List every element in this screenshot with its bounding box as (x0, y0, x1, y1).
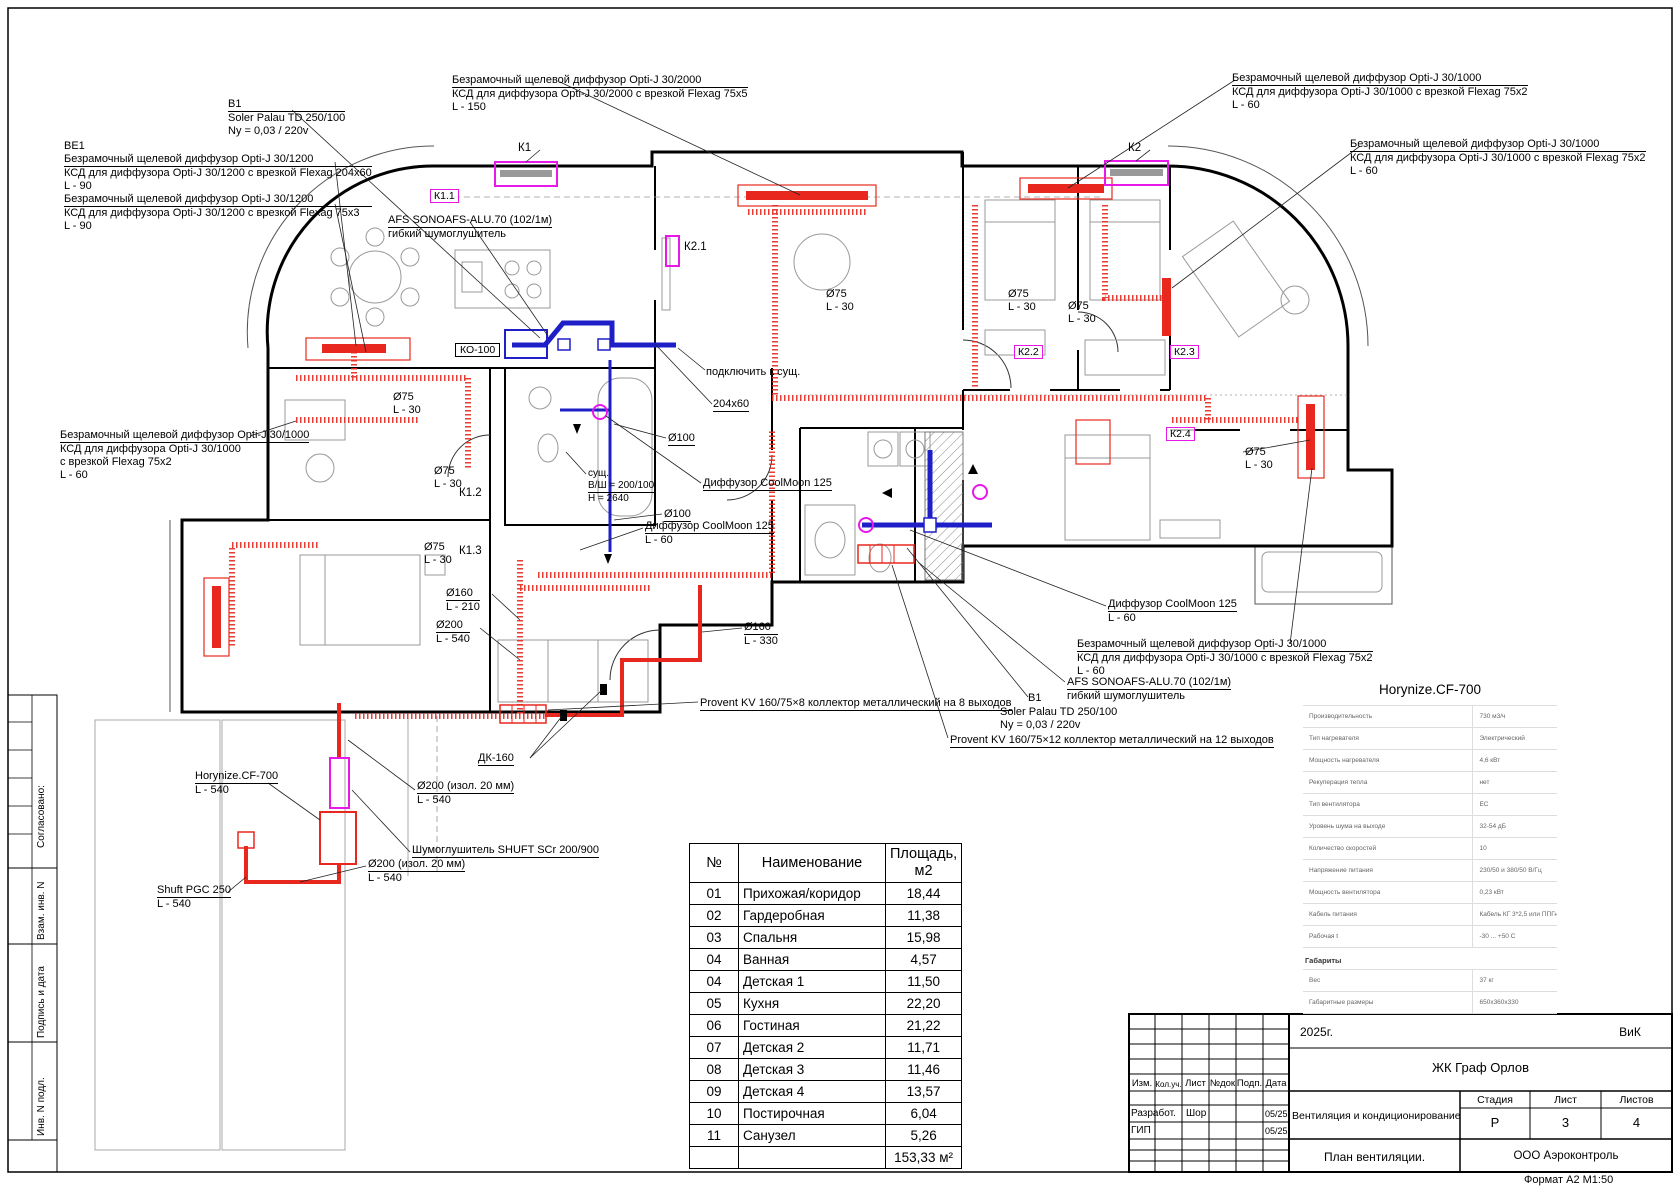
table-cell: 15,98 (886, 927, 962, 949)
table-row: Габаритные размеры650х360х330 (1303, 992, 1557, 1014)
annotation-shuft-silencer: Шумоглушитель SHUFT SCr 200/900 (412, 844, 599, 858)
annotation-line: Ø160 (446, 587, 480, 601)
annotation-d75-5: Ø75L - 30 (1008, 288, 1036, 314)
annotation-line: Soler Palau TD 250/100 (1000, 706, 1117, 719)
table-cell: Рабочая t (1303, 926, 1473, 948)
table-cell: 11,46 (886, 1059, 962, 1081)
titleblock-sheets-value: 4 (1601, 1115, 1672, 1130)
table-cell: Электрический (1473, 728, 1557, 750)
annotation-shuft-pgc: Shuft PGC 250L - 540 (157, 884, 231, 911)
table-cell: нет (1473, 772, 1557, 794)
annotation-line: L - 540 (436, 633, 470, 646)
annotation-line: Диффузор CoolMoon 125 (1108, 598, 1237, 612)
table-row: 04Ванная4,57 (690, 949, 962, 971)
unit-spec-dimensions-header: Габариты (1305, 956, 1557, 965)
table-row: Тип вентилятораЕС (1303, 794, 1557, 816)
titleblock-date-2: 05/25 (1265, 1126, 1288, 1136)
annotation-line: Безрамочный щелевой диффузор Opti-J 30/1… (1350, 138, 1646, 152)
table-cell (690, 1147, 739, 1169)
table-cell: Рекуперация тепла (1303, 772, 1473, 794)
table-cell: 5,26 (886, 1125, 962, 1147)
titleblock-role-1: Разработ. (1131, 1108, 1176, 1119)
table-row: 05Кухня22,20 (690, 993, 962, 1015)
building-walls (182, 152, 1392, 712)
table-cell: 21,22 (886, 1015, 962, 1037)
annotation-afs-silencer-bottom: AFS SONOAFS-ALU.70 (102/1м)гибкий шумогл… (1067, 676, 1231, 703)
label-k2-2: К2.2 (1014, 345, 1043, 359)
titleblock-year: 2025г. (1300, 1025, 1333, 1039)
construction-lines (434, 197, 1348, 395)
table-cell: Количество скоростей (1303, 838, 1473, 860)
label-k1-1: К1.1 (430, 189, 459, 203)
table-cell: Кабель КГ 3*2,5 или ППГнг 3*2,5 (КГ 5*1,… (1473, 904, 1557, 926)
table-cell: Кухня (739, 993, 886, 1015)
annotation-line: L - 30 (1245, 459, 1273, 472)
annotation-line: Ø100 (668, 432, 695, 446)
titleblock-stage-label: Стадия (1460, 1094, 1530, 1106)
annotation-line: L - 60 (645, 534, 774, 547)
annotation-line: B1 (228, 98, 345, 112)
annotation-coolmoon-2: Диффузор CoolMoon 125L - 60 (645, 520, 774, 547)
titleblock-sheets-label: Листов (1601, 1094, 1672, 1106)
annotation-line: L - 60 (1232, 99, 1528, 112)
annotation-line: L - 60 (1350, 165, 1646, 178)
label-k1-2: К1.2 (459, 487, 482, 499)
annotation-connect-existing: подключить к сущ. (706, 366, 800, 379)
titleblock-col-podp: Подп. (1236, 1078, 1263, 1089)
annotation-coolmoon-3: Диффузор CoolMoon 125L - 60 (1108, 598, 1237, 625)
annotation-line: сущ. (588, 468, 654, 480)
annotation-line: Ø75 (1068, 300, 1096, 313)
annotation-line: Ø200 (436, 619, 470, 633)
table-row: 02Гардеробная11,38 (690, 905, 962, 927)
table-cell: 07 (690, 1037, 739, 1059)
label-k1: К1 (518, 142, 531, 154)
table-cell: Постирочная (739, 1103, 886, 1125)
annotation-line: Ø200 (изол. 20 мм) (417, 780, 514, 794)
table-cell: 11,38 (886, 905, 962, 927)
title-block-grid (1129, 1014, 1672, 1172)
titleblock-col-koluch: Кол.уч. (1155, 1080, 1182, 1089)
unit-spec-dimensions-table: Вес37 кгГабаритные размеры650х360х330 (1303, 969, 1557, 1014)
table-cell: -30 ... +50 С (1473, 926, 1557, 948)
annotation-line: L - 540 (195, 784, 278, 797)
table-cell: 04 (690, 949, 739, 971)
table-row: Рабочая t-30 ... +50 С (1303, 926, 1557, 948)
table-cell: 02 (690, 905, 739, 927)
annotation-line: Provent KV 160/75×12 коллектор металличе… (950, 734, 1274, 748)
annotation-diffuser-mid-left: Безрамочный щелевой диффузор Opti-J 30/1… (60, 429, 309, 482)
table-row: Уровень шума на выходе32-54 дБ (1303, 816, 1557, 838)
label-k1-3: К1.3 (459, 545, 482, 557)
table-cell: 4,57 (886, 949, 962, 971)
annotation-line: КСД для диффузора Opti-J 30/1000 с врезк… (1077, 652, 1373, 665)
annotation-line: Ø75 (826, 288, 854, 301)
table-row: Мощность вентилятора0,23 кВт (1303, 882, 1557, 904)
table-cell: Тип нагревателя (1303, 728, 1473, 750)
blue-ducts (505, 323, 992, 552)
table-cell: Кабель питания (1303, 904, 1473, 926)
table-cell: Гардеробная (739, 905, 886, 927)
table-row: Количество скоростей10 (1303, 838, 1557, 860)
annotation-d75-1: Ø75L - 30 (393, 391, 421, 417)
table-cell (739, 1147, 886, 1169)
table-header-row: № Наименование Площадь, м2 (690, 844, 962, 883)
annotation-provent-8: Provent KV 160/75×8 коллектор металличес… (700, 697, 1012, 711)
annotation-d160-330: Ø160L - 330 (744, 621, 778, 648)
table-row: 04Детская 111,50 (690, 971, 962, 993)
table-cell: Гостиная (739, 1015, 886, 1037)
table-cell: 18,44 (886, 883, 962, 905)
table-cell: 153,33 м² (886, 1147, 962, 1169)
annotation-line: AFS SONOAFS-ALU.70 (102/1м) (1067, 676, 1231, 690)
table-cell: Детская 1 (739, 971, 886, 993)
table-cell: Уровень шума на выходе (1303, 816, 1473, 838)
annotation-diffuser-bottom-right: Безрамочный щелевой диффузор Opti-J 30/1… (1077, 638, 1373, 678)
annotation-line: Ø200 (изол. 20 мм) (368, 858, 465, 872)
annotation-line: L - 30 (434, 478, 462, 491)
table-cell: 4,6 кВт (1473, 750, 1557, 772)
titleblock-col-izm: Изм. (1129, 1078, 1155, 1089)
annotation-line: гибкий шумоглушитель (1067, 690, 1231, 703)
table-cell: Вес (1303, 970, 1473, 992)
table-row: 09Детская 413,57 (690, 1081, 962, 1103)
table-cell: Мощность нагревателя (1303, 750, 1473, 772)
strip-label-inv-podl: Инв. N подл. (36, 1077, 47, 1136)
annotation-d75-6: Ø75L - 30 (1068, 300, 1096, 326)
annotation-d75-3: Ø75L - 30 (424, 541, 452, 567)
annotation-line: Ny = 0,03 / 220v (228, 125, 345, 138)
col-name: Наименование (739, 844, 886, 883)
annotation-line: Soler Palau TD 250/100 (228, 112, 345, 125)
annotation-line: L - 150 (452, 101, 748, 114)
annotation-d75-4: Ø75L - 30 (826, 288, 854, 314)
table-row: Кабель питанияКабель КГ 3*2,5 или ППГнг … (1303, 904, 1557, 926)
annotation-d200-insulated-2: Ø200 (изол. 20 мм)L - 540 (368, 858, 465, 885)
annotation-line: Безрамочный щелевой диффузор Opti-J 30/2… (452, 74, 748, 88)
annotation-line: 204x60 (713, 398, 749, 412)
annotation-diffuser-top-center: Безрамочный щелевой диффузор Opti-J 30/2… (452, 74, 748, 114)
annotation-line: L - 90 (64, 180, 372, 193)
label-k2-3: К2.3 (1170, 345, 1199, 359)
titleblock-date-1: 05/25 (1265, 1109, 1288, 1119)
annotation-line: Ø75 (1008, 288, 1036, 301)
table-row: 10Постирочная6,04 (690, 1103, 962, 1125)
annotation-line: L - 30 (826, 301, 854, 314)
table-cell: 11,50 (886, 971, 962, 993)
col-area: Площадь, м2 (886, 844, 962, 883)
drawing-sheet: B1Soler Palau TD 250/100Ny = 0,03 / 220v… (0, 0, 1680, 1189)
annotation-line: L - 30 (1068, 313, 1096, 326)
titleblock-company: ООО Аэроконтроль (1460, 1150, 1672, 1162)
label-k2-1: К2.1 (684, 241, 707, 253)
table-row: Напряжение питания230/50 и 380/50 В/Гц (1303, 860, 1557, 882)
col-number: № (690, 844, 739, 883)
annotation-line: КСД для диффузора Opti-J 30/1000 (60, 443, 309, 456)
table-cell: 730 м3/ч (1473, 706, 1557, 728)
annotation-line: с врезкой Flexag 75x2 (60, 456, 309, 469)
annotation-line: BE1 (64, 140, 372, 153)
table-cell: 650х360х330 (1473, 992, 1557, 1014)
table-cell: Тип вентилятора (1303, 794, 1473, 816)
annotation-fan-b1-top: B1Soler Palau TD 250/100Ny = 0,03 / 220v (228, 98, 345, 138)
strip-label-soglasovano: Согласовано: (36, 785, 47, 848)
annotation-line: Диффузор CoolMoon 125 (645, 520, 774, 534)
table-cell: Санузел (739, 1125, 886, 1147)
annotation-duct-204x60: 204x60 (713, 398, 749, 412)
annotation-line: Ø160 (744, 621, 778, 635)
unit-spec-panel: Horynize.CF-700 Производительность730 м3… (1303, 682, 1557, 1014)
table-cell: 04 (690, 971, 739, 993)
table-cell: ЕС (1473, 794, 1557, 816)
table-row: 08Детская 311,46 (690, 1059, 962, 1081)
titleblock-sheet-value: 3 (1530, 1115, 1601, 1130)
titleblock-sheet-label: Лист (1530, 1094, 1601, 1106)
table-cell: Детская 4 (739, 1081, 886, 1103)
annotation-provent-12: Provent KV 160/75×12 коллектор металличе… (950, 734, 1274, 748)
table-cell: Ванная (739, 949, 886, 971)
titleblock-code: ВиК (1598, 1025, 1662, 1039)
annotation-horynize-unit: Horynize.CF-700L - 540 (195, 770, 278, 797)
unit-spec-table: Производительность730 м3/чТип нагревател… (1303, 705, 1557, 948)
annotation-line: Shuft PGC 250 (157, 884, 231, 898)
titleblock-stage-value: Р (1460, 1115, 1530, 1130)
table-row: 07Детская 211,71 (690, 1037, 962, 1059)
annotation-line: Безрамочный щелевой диффузор Opti-J 30/1… (1232, 72, 1528, 86)
annotation-line: Безрамочный щелевой диффузор Opti-J 30/1… (60, 429, 309, 443)
annotation-coolmoon-1: Диффузор CoolMoon 125 (703, 477, 832, 491)
table-cell: 13,57 (886, 1081, 962, 1103)
annotation-line: B1 (1028, 692, 1041, 705)
annotation-line: Ø75 (393, 391, 421, 404)
annotation-line: КСД для диффузора Opti-J 30/1200 с врезк… (64, 207, 372, 220)
table-row: Мощность нагревателя4,6 кВт (1303, 750, 1557, 772)
titleblock-drawing-title: План вентиляции. (1289, 1150, 1460, 1164)
annotation-d160-210: Ø160L - 210 (446, 587, 480, 614)
annotation-line: Шумоглушитель SHUFT SCr 200/900 (412, 844, 599, 858)
titleblock-col-ndok: №док (1209, 1078, 1236, 1089)
annotation-line: КСД для диффузора Opti-J 30/1200 с врезк… (64, 167, 372, 180)
titleblock-project: ЖК Граф Орлов (1289, 1060, 1672, 1075)
titleblock-role-2: ГИП (1131, 1125, 1151, 1136)
table-row: 03Спальня15,98 (690, 927, 962, 949)
annotation-diffuser-top-right-1: Безрамочный щелевой диффузор Opti-J 30/1… (1232, 72, 1528, 112)
table-cell: 01 (690, 883, 739, 905)
table-cell: 11 (690, 1125, 739, 1147)
room-area-table: № Наименование Площадь, м2 01Прихожая/ко… (689, 843, 962, 1169)
label-ko100: КО-100 (455, 343, 500, 357)
annotation-d100-1: Ø100 (668, 432, 695, 446)
table-cell: 09 (690, 1081, 739, 1103)
table-cell: Мощность вентилятора (1303, 882, 1473, 904)
annotation-line: Безрамочный щелевой диффузор Opti-J 30/1… (64, 193, 372, 207)
table-cell: 0,23 кВт (1473, 882, 1557, 904)
table-row: 11Санузел5,26 (690, 1125, 962, 1147)
annotation-line: подключить к сущ. (706, 366, 800, 379)
table-cell: 37 кг (1473, 970, 1557, 992)
unit-spec-title: Horynize.CF-700 (1303, 682, 1557, 697)
annotation-line: Ø75 (424, 541, 452, 554)
titleblock-col-data: Дата (1263, 1078, 1289, 1089)
table-row: 01Прихожая/коридор18,44 (690, 883, 962, 905)
annotation-line: L - 60 (1108, 612, 1237, 625)
annotation-line: Provent KV 160/75×8 коллектор металличес… (700, 697, 1012, 711)
annotation-line: КСД для диффузора Opti-J 30/1000 с врезк… (1232, 86, 1528, 99)
annotation-d75-2: Ø75L - 30 (434, 465, 462, 491)
table-cell: 32-54 дБ (1473, 816, 1557, 838)
table-cell: Напряжение питания (1303, 860, 1473, 882)
annotation-line: AFS SONOAFS-ALU.70 (102/1м) (388, 214, 552, 228)
annotation-be1: BE1Безрамочный щелевой диффузор Opti-J 3… (64, 140, 372, 233)
annotation-line: L - 540 (417, 794, 514, 807)
table-cell: Спальня (739, 927, 886, 949)
table-cell: 22,20 (886, 993, 962, 1015)
annotation-line: Диффузор CoolMoon 125 (703, 477, 832, 491)
table-row: Тип нагревателяЭлектрический (1303, 728, 1557, 750)
annotation-line: Ø75 (434, 465, 462, 478)
table-row: 153,33 м² (690, 1147, 962, 1169)
titleblock-name-1: Шор (1186, 1108, 1206, 1119)
annotation-line: Безрамочный щелевой диффузор Opti-J 30/1… (64, 153, 372, 167)
table-row: Производительность730 м3/ч (1303, 706, 1557, 728)
table-cell: 6,04 (886, 1103, 962, 1125)
table-cell: Детская 2 (739, 1037, 886, 1059)
table-cell: 10 (1473, 838, 1557, 860)
table-cell: 06 (690, 1015, 739, 1037)
annotation-line: L - 540 (157, 898, 231, 911)
annotation-line: L - 30 (424, 554, 452, 567)
annotation-line: L - 210 (446, 601, 480, 614)
table-cell: 230/50 и 380/50 В/Гц (1473, 860, 1557, 882)
table-cell: 10 (690, 1103, 739, 1125)
annotation-line: Безрамочный щелевой диффузор Opti-J 30/1… (1077, 638, 1373, 652)
annotation-line: L - 30 (393, 404, 421, 417)
annotation-d200-insulated-1: Ø200 (изол. 20 мм)L - 540 (417, 780, 514, 807)
titleblock-col-list: Лист (1182, 1078, 1209, 1089)
annotation-line: КСД для диффузора Opti-J 30/2000 с врезк… (452, 88, 748, 101)
annotation-line: В/Ш = 200/100 (588, 480, 654, 493)
strip-label-vzam-inv: Взам. инв. N (36, 882, 47, 940)
label-k2-4: К2.4 (1166, 427, 1195, 441)
annotation-line: ДК-160 (478, 752, 514, 766)
annotation-dk160: ДК-160 (478, 752, 514, 766)
table-cell: Габаритные размеры (1303, 992, 1473, 1014)
table-cell: 03 (690, 927, 739, 949)
annotation-line: L - 30 (1008, 301, 1036, 314)
table-cell: Детская 3 (739, 1059, 886, 1081)
annotation-line: Ø75 (1245, 446, 1273, 459)
annotation-line: L - 330 (744, 635, 778, 648)
annotation-line: L - 90 (64, 220, 372, 233)
table-row: 06Гостиная21,22 (690, 1015, 962, 1037)
annotation-line: Ny = 0,03 / 220v (1000, 719, 1117, 732)
annotation-line: гибкий шумоглушитель (388, 228, 552, 241)
annotation-fan-b1-bottom-spec: Soler Palau TD 250/100Ny = 0,03 / 220v (1000, 706, 1117, 732)
annotation-existing-shaft: сущ.В/Ш = 200/100Н = 2640 (588, 468, 654, 505)
annotation-d75-7: Ø75L - 30 (1245, 446, 1273, 472)
annotation-line: Horynize.CF-700 (195, 770, 278, 784)
annotation-d200-540: Ø200L - 540 (436, 619, 470, 646)
titleblock-section: Вентиляция и кондиционирование (1292, 1110, 1457, 1122)
table-cell: 08 (690, 1059, 739, 1081)
annotation-fan-b1-bottom-label: B1 (1028, 692, 1041, 705)
table-cell: 05 (690, 993, 739, 1015)
annotation-afs-silencer-top: AFS SONOAFS-ALU.70 (102/1м)гибкий шумогл… (388, 214, 552, 241)
annotation-line: КСД для диффузора Opti-J 30/1000 с врезк… (1350, 152, 1646, 165)
table-cell: Прихожая/коридор (739, 883, 886, 905)
annotation-line: L - 60 (60, 469, 309, 482)
table-cell: 11,71 (886, 1037, 962, 1059)
table-cell: Производительность (1303, 706, 1473, 728)
annotation-line: Н = 2640 (588, 493, 654, 505)
table-row: Рекуперация тепланет (1303, 772, 1557, 794)
annotation-diffuser-top-right-2: Безрамочный щелевой диффузор Opti-J 30/1… (1350, 138, 1646, 178)
label-k2: К2 (1128, 142, 1141, 154)
format-note: Формат А2 М1:50 (1524, 1174, 1613, 1186)
table-row: Вес37 кг (1303, 970, 1557, 992)
annotation-line: L - 540 (368, 872, 465, 885)
strip-label-podpis-data: Подпись и дата (36, 966, 47, 1038)
